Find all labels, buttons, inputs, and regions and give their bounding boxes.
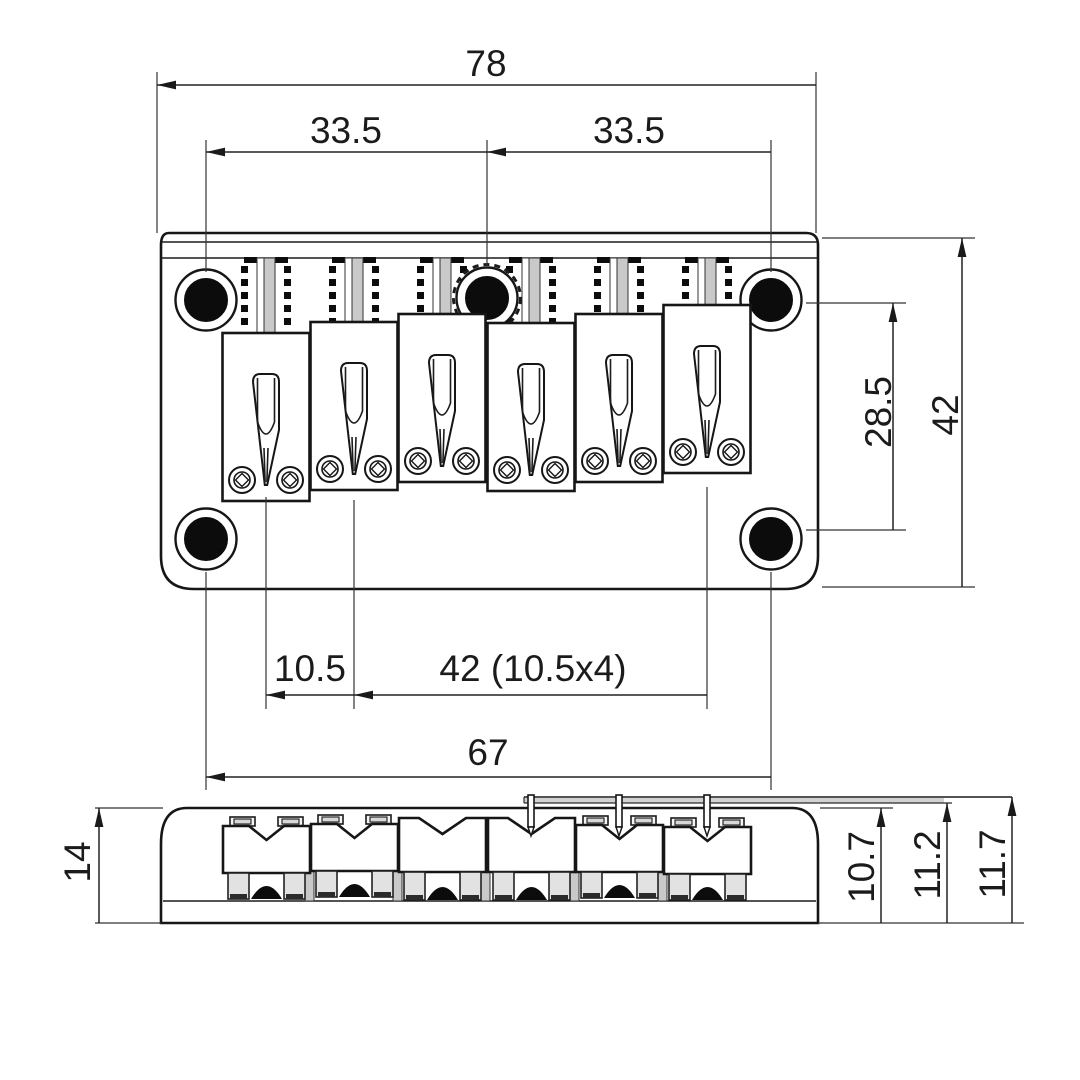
- dim-text-10-7: 10.7: [841, 831, 882, 903]
- saddle-2: [311, 322, 398, 490]
- dim-text-42-span: 42 (10.5x4): [439, 648, 626, 689]
- string-bar: [524, 797, 1012, 803]
- string-pin-3: [704, 795, 710, 836]
- saddle-5: [576, 314, 663, 482]
- saddle-3: [399, 314, 486, 482]
- dim-text-33-5-left: 33.5: [310, 110, 382, 151]
- dim-text-67: 67: [467, 732, 508, 773]
- saddle-1: [223, 333, 310, 501]
- mount-hole-bottom-right: [741, 509, 802, 570]
- string-pin-2: [616, 795, 622, 836]
- mount-hole-bottom-left: [176, 509, 237, 570]
- dim-hole-row-spacing: 28.5: [806, 303, 906, 530]
- dim-text-11-7: 11.7: [972, 829, 1013, 898]
- saddle-4: [488, 323, 575, 491]
- dim-text-33-5-right: 33.5: [593, 110, 665, 151]
- dim-side-heights-right: 10.7 11.2 11.7: [818, 797, 1024, 923]
- dim-text-28-5: 28.5: [858, 376, 899, 448]
- dim-text-11-2: 11.2: [907, 830, 948, 899]
- side-view: 14 10.7 11.2 11.7: [57, 795, 1024, 923]
- saddles: [223, 305, 751, 501]
- dim-side-height: 14: [57, 808, 163, 923]
- bridge-drawing-svg: 78 33.5 33.5 28.5 42: [0, 0, 1080, 1080]
- mount-hole-top-left: [176, 270, 237, 331]
- saddle-6: [664, 305, 751, 473]
- dim-text-14: 14: [57, 841, 98, 882]
- string-pin-1: [528, 795, 534, 836]
- dim-text-78: 78: [465, 43, 506, 84]
- technical-drawing-page: 78 33.5 33.5 28.5 42: [0, 0, 1080, 1080]
- top-view: 78 33.5 33.5 28.5 42: [157, 43, 975, 790]
- dim-text-42: 42: [925, 394, 966, 435]
- dim-text-10-5: 10.5: [274, 648, 346, 689]
